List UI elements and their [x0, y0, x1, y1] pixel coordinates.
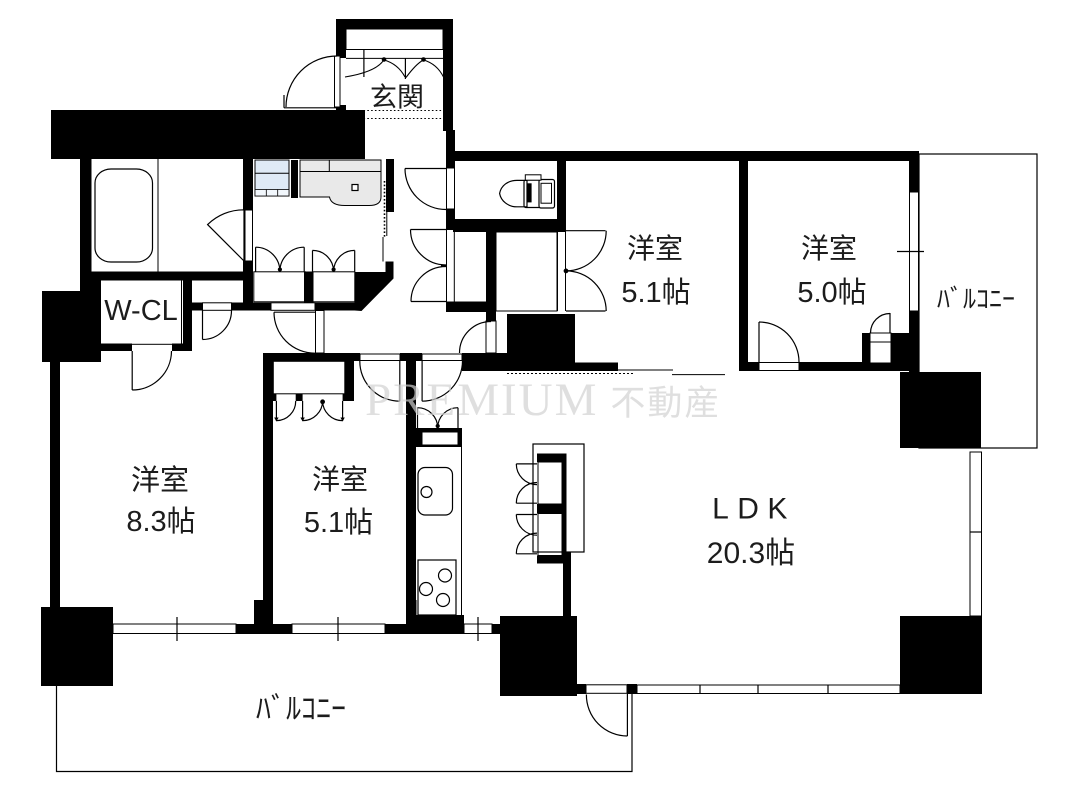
svg-text:玄関: 玄関 [370, 83, 424, 113]
svg-text:ﾊﾞﾙｺﾆｰ: ﾊﾞﾙｺﾆｰ [937, 284, 1015, 314]
svg-text:洋室: 洋室 [627, 233, 683, 264]
svg-text:20.3帖: 20.3帖 [707, 537, 795, 570]
svg-text:ﾊﾞﾙｺﾆｰ: ﾊﾞﾙｺﾆｰ [256, 693, 346, 726]
svg-text:洋室: 洋室 [801, 233, 857, 264]
svg-text:洋室: 洋室 [131, 464, 189, 497]
svg-text:8.3帖: 8.3帖 [126, 505, 195, 538]
svg-text:5.1帖: 5.1帖 [621, 276, 690, 309]
svg-text:LDK: LDK [712, 493, 796, 526]
svg-text:W-CL: W-CL [104, 295, 178, 327]
svg-text:5.1帖: 5.1帖 [304, 506, 373, 539]
svg-text:洋室: 洋室 [312, 464, 368, 495]
svg-text:5.0帖: 5.0帖 [797, 276, 866, 309]
